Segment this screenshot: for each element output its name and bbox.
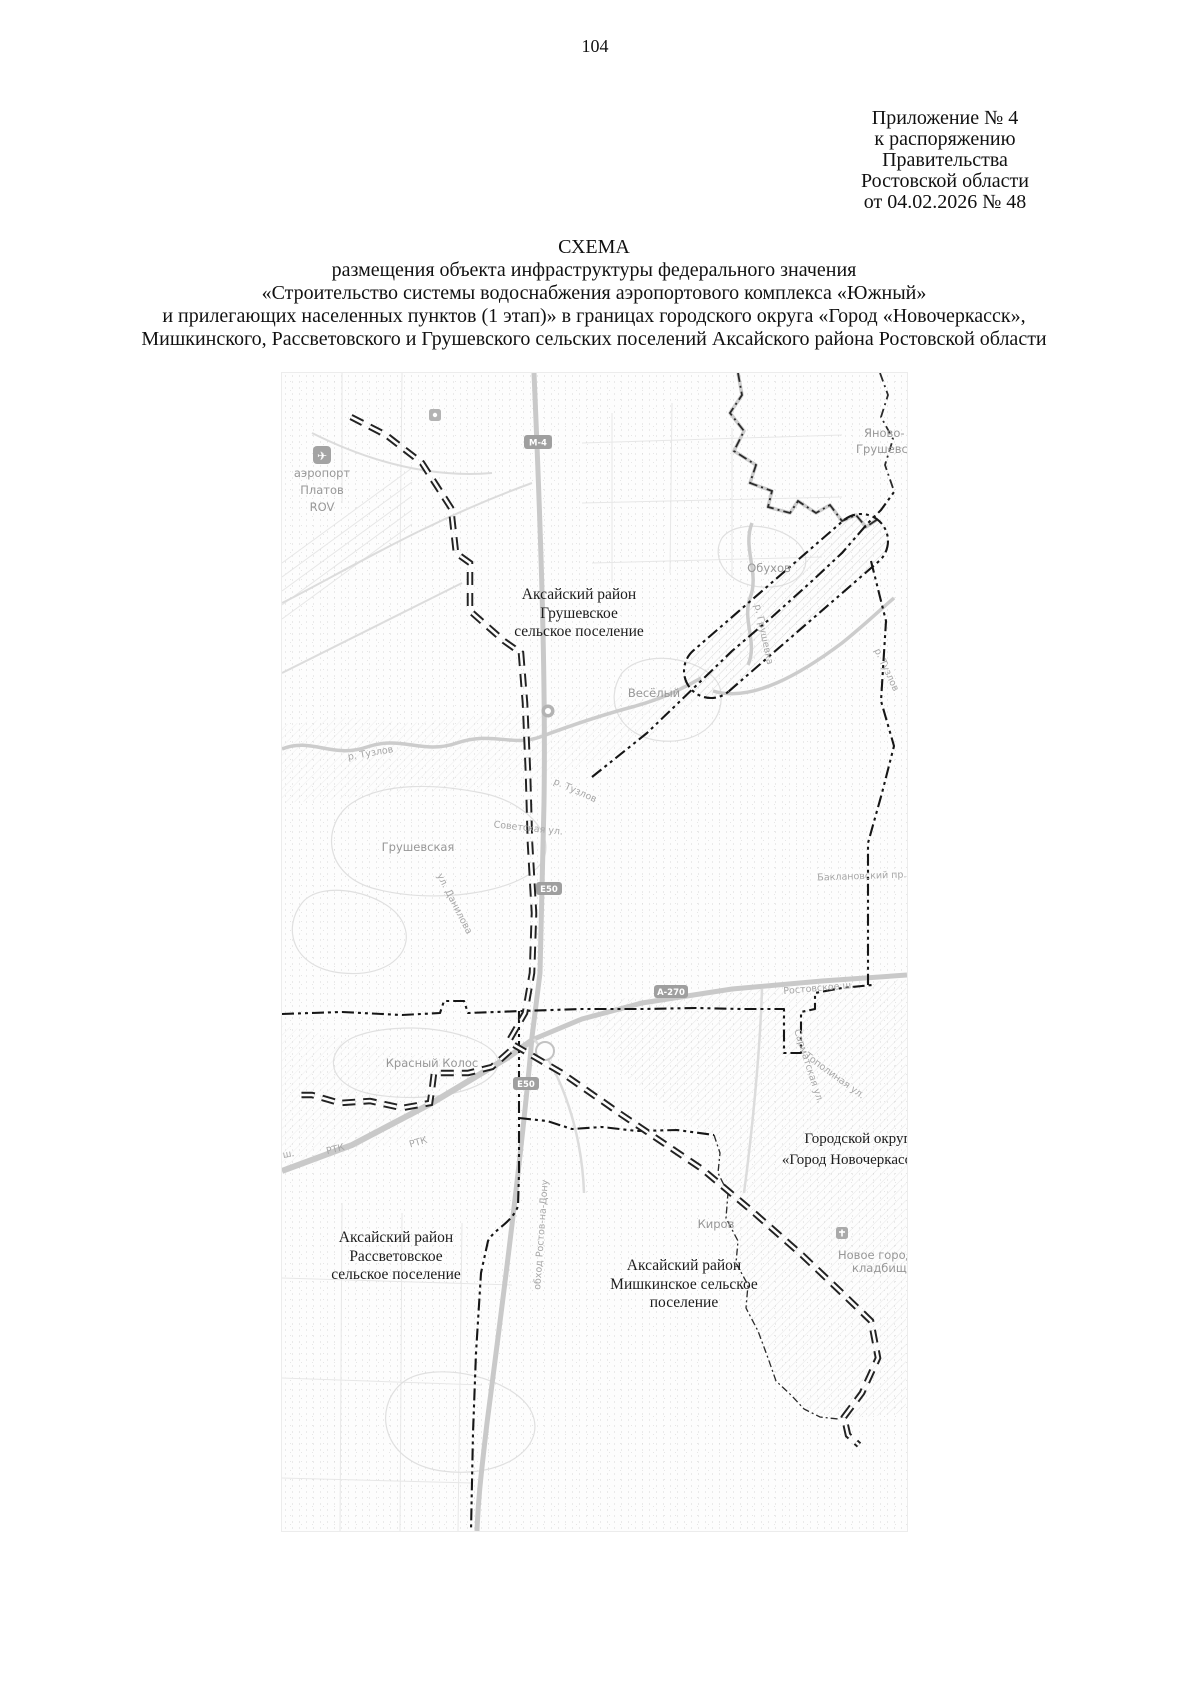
- title-line: «Строительство системы водоснабжения аэр…: [0, 282, 1188, 305]
- scheme-map: М-4 Е50 Е50 А-270 ✈: [281, 372, 908, 1532]
- cemetery-label-line2: кладбище: [852, 1261, 907, 1275]
- map-hatch-areas: [282, 514, 906, 1419]
- badge-e50-north: Е50: [536, 882, 562, 895]
- road-service-icon: [542, 705, 555, 718]
- cemetery-icon: [836, 1227, 848, 1239]
- street-sovetskaya: Советская ул.: [493, 819, 563, 837]
- boundary-vertical-south: [471, 1011, 519, 1531]
- header-line: Ростовской области: [810, 171, 1080, 192]
- area-grushevskoe-line1: Аксайский район: [522, 586, 636, 603]
- badge-m4: М-4: [524, 435, 552, 449]
- cemetery-label-line1: Новое городское: [838, 1248, 907, 1262]
- area-rassvetovskoe-line1: Аксайский район: [339, 1229, 453, 1246]
- map-field-grid: [282, 373, 842, 1531]
- map-canvas: М-4 Е50 Е50 А-270 ✈: [282, 373, 907, 1531]
- header-line: к распоряжению: [810, 129, 1080, 150]
- badge-e50-south: Е50: [513, 1077, 539, 1090]
- airport-label-line2: Платов: [300, 483, 344, 497]
- area-mishkinskoe-line1: Аксайский район: [627, 1257, 741, 1274]
- street-danilova: ул. Данилова: [434, 872, 474, 936]
- settlement-yanovo-line1: Яново-: [864, 426, 905, 440]
- header-line: Приложение № 4: [810, 108, 1080, 129]
- page-number: 104: [0, 36, 1190, 57]
- badge-e50-label: Е50: [517, 1080, 535, 1090]
- header-line: Правительства: [810, 150, 1080, 171]
- airport-label-line1: аэропорт: [294, 466, 351, 480]
- settlement-vesyoly: Весёлый: [628, 686, 680, 700]
- area-novocherkassk-line2: «Город Новочеркасск»: [782, 1152, 907, 1168]
- boundary-east: [868, 561, 894, 985]
- scheme-title: СХЕМА размещения объекта инфраструктуры …: [0, 236, 1188, 351]
- header-line: от 04.02.2026 № 48: [810, 192, 1080, 213]
- river-tuzlov-label-east: р. Тузлов: [872, 647, 902, 694]
- area-mishkinskoe-line3: поселение: [650, 1294, 719, 1311]
- settlement-yanovo-line2: Грушевский: [856, 442, 907, 456]
- settlement-grushevskaya: Грушевская: [382, 840, 455, 854]
- badge-a270-label: А-270: [657, 988, 685, 998]
- appendix-header: Приложение № 4 к распоряжению Правительс…: [810, 108, 1080, 213]
- area-grushevskoe-line3: сельское поселение: [514, 623, 644, 640]
- title-line: Мишкинского, Рассветовского и Грушевског…: [0, 328, 1188, 351]
- river-tuzlov-label-mid: р. Тузлов: [552, 776, 599, 805]
- area-novocherkassk-line1: Городской округ: [804, 1131, 907, 1147]
- svg-text:✈: ✈: [317, 449, 327, 463]
- area-rassvetovskoe-line2: Рассветовское: [349, 1248, 442, 1265]
- airport-label-line3: ROV: [310, 500, 335, 514]
- street-baklanovsky: Баклановский пр.: [817, 869, 907, 883]
- area-rassvetovskoe-line3: сельское поселение: [331, 1266, 461, 1283]
- document-page: 104 Приложение № 4 к распоряжению Правит…: [0, 0, 1200, 1698]
- area-grushevskoe-line2: Грушевское: [540, 605, 618, 622]
- badge-m4-label: М-4: [529, 439, 547, 449]
- title-line: СХЕМА: [0, 236, 1188, 259]
- badge-e50-label: Е50: [540, 885, 558, 895]
- area-mishkinskoe-line2: Мишкинское сельское: [610, 1276, 758, 1293]
- airport-icon: ✈: [313, 446, 331, 464]
- street-obkhod-rostov: обход Ростов-на-Дону: [532, 1179, 551, 1290]
- settlement-kirov: Киров: [698, 1217, 735, 1231]
- title-line: размещения объекта инфраструктуры федера…: [0, 259, 1188, 282]
- boundary-east-branch: [519, 1118, 714, 1135]
- settlement-obukhov: Обухов: [747, 561, 791, 575]
- road-label-sh: ш.: [282, 1148, 295, 1161]
- title-line: и прилегающих населенных пунктов (1 этап…: [0, 305, 1188, 328]
- poi-square-icon: [429, 409, 441, 421]
- badge-a270: А-270: [654, 985, 688, 998]
- settlement-krasny-kolos: Красный Колос: [386, 1056, 478, 1070]
